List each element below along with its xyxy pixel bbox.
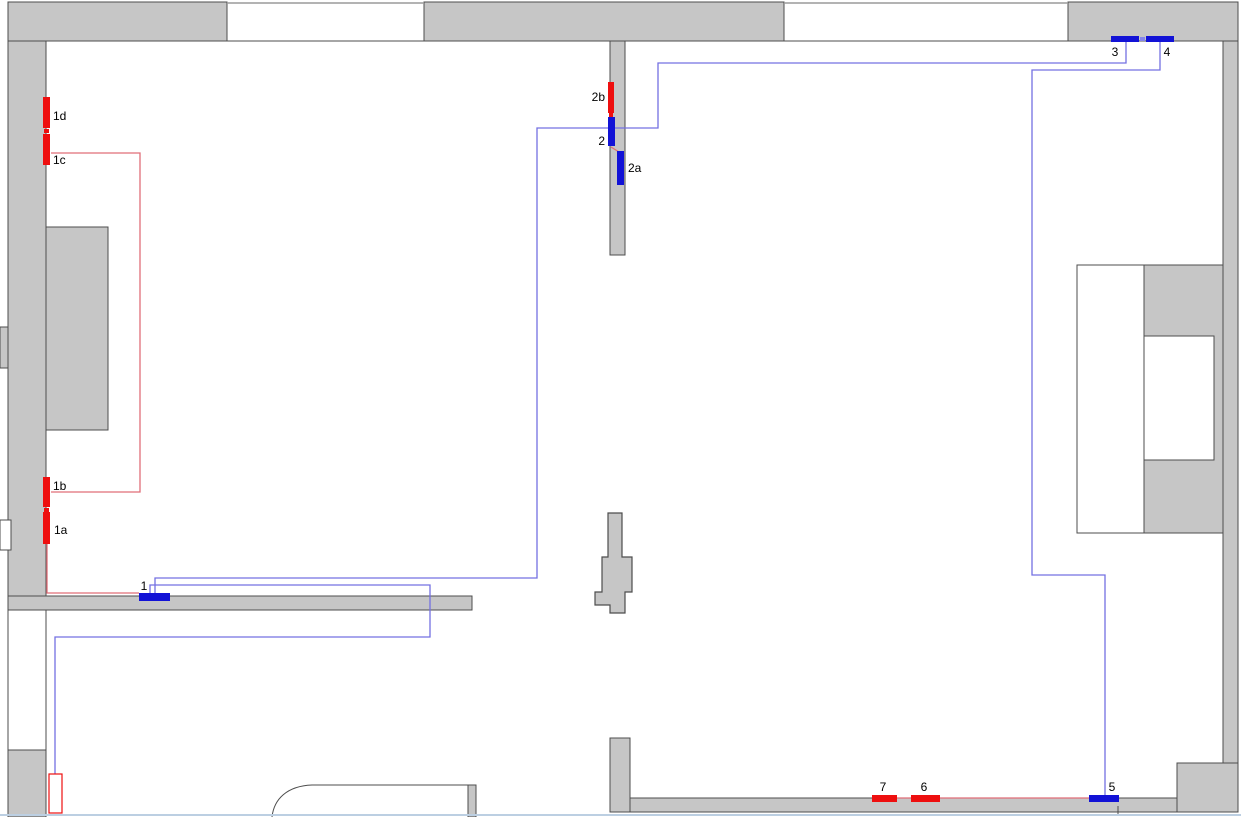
counter-end bbox=[468, 785, 476, 817]
marker-label-1: 1 bbox=[141, 579, 148, 593]
wall-bottom-left bbox=[8, 596, 472, 610]
marker-3[interactable] bbox=[1111, 36, 1139, 42]
wall-left-bump bbox=[46, 227, 108, 430]
marker-label-2: 2 bbox=[598, 134, 605, 148]
valve-tick-1b-1a bbox=[44, 508, 49, 512]
boiler-outline[interactable] bbox=[49, 774, 62, 813]
left-wall-opening bbox=[0, 520, 11, 550]
marker-label-1a: 1a bbox=[54, 523, 68, 537]
wall-top-left bbox=[8, 2, 227, 41]
floor-plan-svg: 1d1c1b1a12b22a34567 bbox=[0, 0, 1241, 817]
valve-tick-2b-2 bbox=[609, 113, 613, 117]
valve-tick-3-4 bbox=[1140, 37, 1145, 41]
marker-label-4: 4 bbox=[1164, 45, 1171, 59]
marker-1d[interactable] bbox=[43, 97, 50, 128]
marker-label-2b: 2b bbox=[592, 90, 606, 104]
wall-bottom-right-block bbox=[1177, 763, 1238, 812]
niche-inner bbox=[1144, 336, 1214, 460]
marker-label-3: 3 bbox=[1112, 45, 1119, 59]
marker-1c[interactable] bbox=[43, 134, 50, 165]
valve-tick-1d-1c bbox=[44, 129, 49, 133]
floor-plan-canvas: 1d1c1b1a12b22a34567 bbox=[0, 0, 1241, 817]
marker-2[interactable] bbox=[608, 117, 615, 146]
marker-1a[interactable] bbox=[43, 512, 50, 544]
marker-7[interactable] bbox=[872, 795, 897, 802]
marker-1b[interactable] bbox=[43, 477, 50, 507]
wall-top-right bbox=[1068, 2, 1238, 41]
marker-label-2a: 2a bbox=[628, 161, 642, 175]
marker-label-6: 6 bbox=[921, 780, 928, 794]
marker-label-1c: 1c bbox=[53, 153, 66, 167]
marker-label-1b: 1b bbox=[53, 479, 67, 493]
wall-left-lower-cavity bbox=[8, 610, 46, 750]
marker-4[interactable] bbox=[1146, 36, 1174, 42]
wall-top-middle bbox=[424, 2, 784, 41]
marker-2b[interactable] bbox=[608, 82, 614, 113]
marker-6[interactable] bbox=[911, 795, 940, 802]
marker-label-1d: 1d bbox=[53, 109, 66, 123]
marker-5[interactable] bbox=[1089, 795, 1119, 802]
wall-middle-bottom bbox=[610, 738, 630, 812]
wall-left-lower bbox=[8, 750, 46, 817]
marker-label-7: 7 bbox=[880, 780, 887, 794]
marker-1[interactable] bbox=[139, 593, 170, 601]
marker-label-5: 5 bbox=[1109, 780, 1116, 794]
niche-left bbox=[1077, 265, 1144, 533]
wall-left bbox=[8, 41, 46, 610]
wall-left-pier bbox=[0, 327, 8, 368]
marker-2a[interactable] bbox=[617, 151, 624, 185]
wall-right bbox=[1223, 41, 1238, 763]
